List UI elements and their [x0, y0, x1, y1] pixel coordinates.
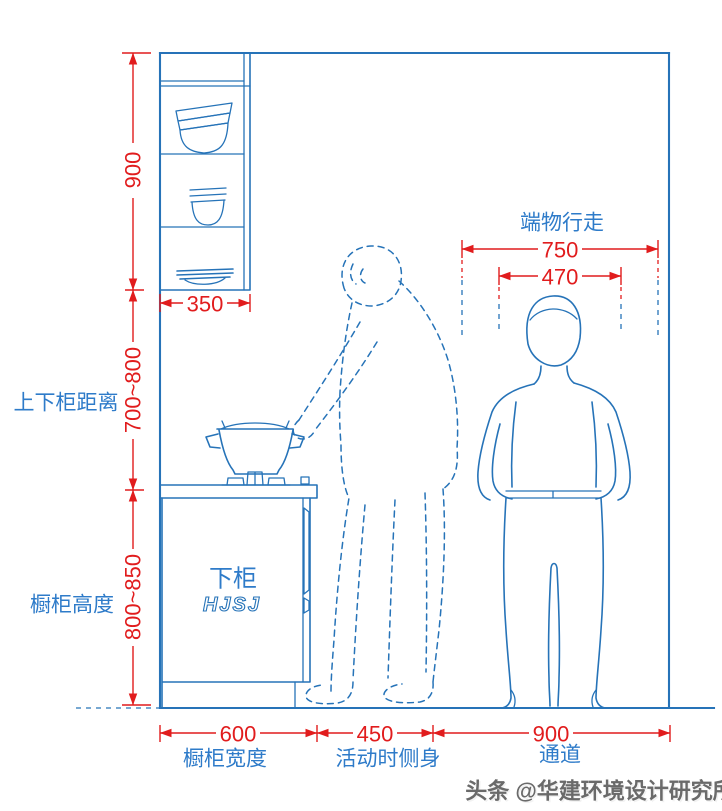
cook-foot-front	[306, 682, 353, 704]
cook-back	[399, 281, 458, 489]
label-upper-lower-gap: 上下柜距离	[14, 392, 119, 415]
cook-chest	[340, 303, 352, 445]
cooking-person-figure	[293, 246, 457, 704]
dim-upper-height: 900	[121, 152, 146, 189]
person-belt	[506, 491, 601, 498]
pot-handle-left	[206, 434, 220, 448]
door-handle	[304, 508, 309, 613]
standing-person-figure	[478, 296, 630, 708]
cook-arm-lower	[315, 342, 377, 430]
dim-base-width: 600	[220, 722, 257, 747]
label-cabinet-height: 橱柜高度	[30, 594, 114, 617]
person-leg-inseam	[549, 564, 560, 707]
dim-walk-width: 750	[542, 238, 579, 263]
dim-bottom: 600 450 900	[160, 722, 670, 747]
cook-hand	[293, 420, 315, 439]
kitchen-ergonomics-diagram: 900 700~800 800~850 上下柜距离 橱柜高度 350 端物行走 …	[0, 0, 722, 811]
cooking-pot	[206, 421, 304, 474]
person-arm-left-inner	[492, 424, 512, 499]
dim-gap-range: 700~800	[121, 347, 146, 433]
cook-back-leg	[433, 489, 444, 682]
dim-base-range: 800~850	[121, 554, 146, 640]
person-arm-left-outer	[478, 384, 534, 500]
room-outline	[76, 53, 714, 708]
person-leg-left	[502, 498, 511, 708]
dim-walk: 端物行走 750 470	[462, 212, 658, 337]
burner-knob	[301, 477, 309, 484]
dim-side-width: 450	[357, 722, 394, 747]
dim-upper-depth: 350	[187, 292, 224, 317]
person-head	[527, 296, 581, 366]
person-leg-right	[596, 498, 605, 708]
brand-logo: HJSJ	[203, 594, 261, 616]
label-cabinet-width: 橱柜宽度	[183, 748, 267, 771]
dim-carry-width: 470	[542, 265, 579, 290]
person-hair	[530, 309, 577, 320]
plate-stack	[177, 269, 233, 284]
dim-350: 350	[160, 292, 250, 317]
bowl-stack-large	[176, 103, 232, 153]
cook-face-detail	[351, 264, 365, 284]
cook-foot-back	[384, 682, 433, 703]
person-arm-right-outer	[574, 383, 630, 500]
person-ankles	[511, 690, 596, 707]
pot-lid	[221, 423, 289, 429]
watermark-text: 头条 @华建环境设计研究所	[465, 779, 722, 804]
cook-leg-lines	[353, 493, 427, 680]
person-torso-right	[592, 402, 596, 487]
bowl-stack-small	[190, 188, 226, 225]
cook-arm-upper	[299, 322, 360, 420]
person-torso-left	[512, 402, 516, 487]
label-lower-cabinet: 下柜	[209, 566, 257, 593]
countertop	[160, 485, 317, 498]
label-carry-walk: 端物行走	[520, 212, 604, 235]
upper-cabinet-top-divider	[160, 81, 250, 86]
watermark: 头条 @华建环境设计研究所 头条 @华建环境设计研究所	[465, 779, 722, 806]
person-neck	[534, 366, 574, 384]
label-side-move: 活动时侧身	[336, 748, 441, 771]
cook-apron-front	[331, 445, 349, 692]
dim-left-chain: 900 700~800 800~850	[121, 53, 152, 705]
person-arm-right-inner	[596, 424, 616, 499]
upper-cabinet	[160, 53, 250, 290]
label-passage: 通道	[539, 744, 581, 767]
